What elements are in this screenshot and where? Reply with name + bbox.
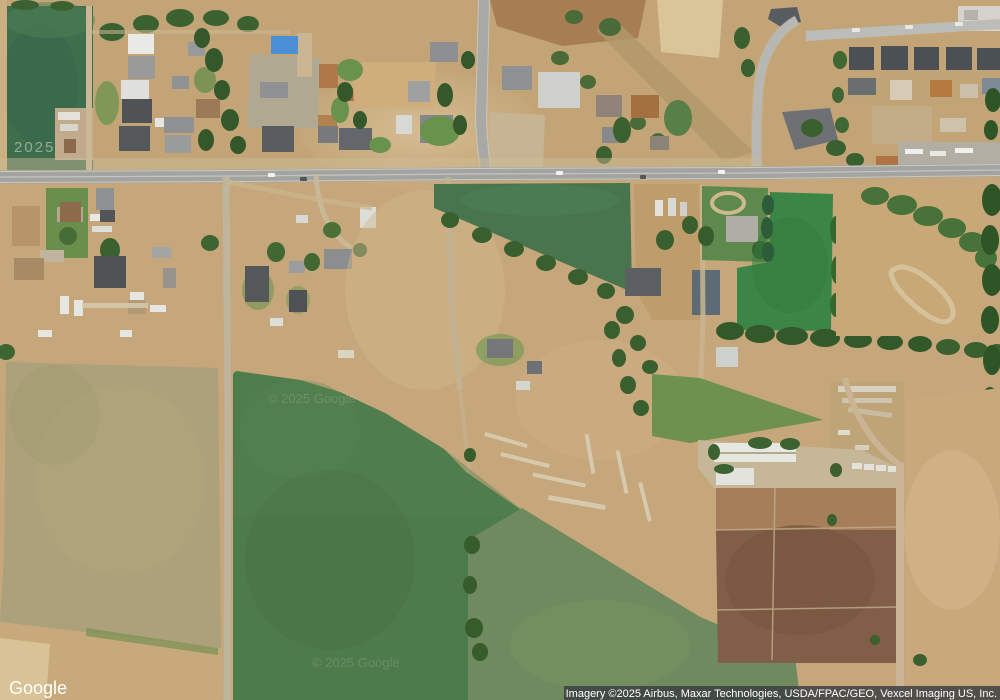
svg-text:2025: 2025 — [14, 139, 55, 156]
svg-text:© 2025 Google: © 2025 Google — [312, 655, 400, 670]
svg-text:© 2025 Google: © 2025 Google — [268, 391, 356, 406]
svg-text:Google: Google — [9, 678, 67, 698]
svg-text:Imagery ©2025 Airbus, Maxar Te: Imagery ©2025 Airbus, Maxar Technologies… — [566, 688, 997, 700]
